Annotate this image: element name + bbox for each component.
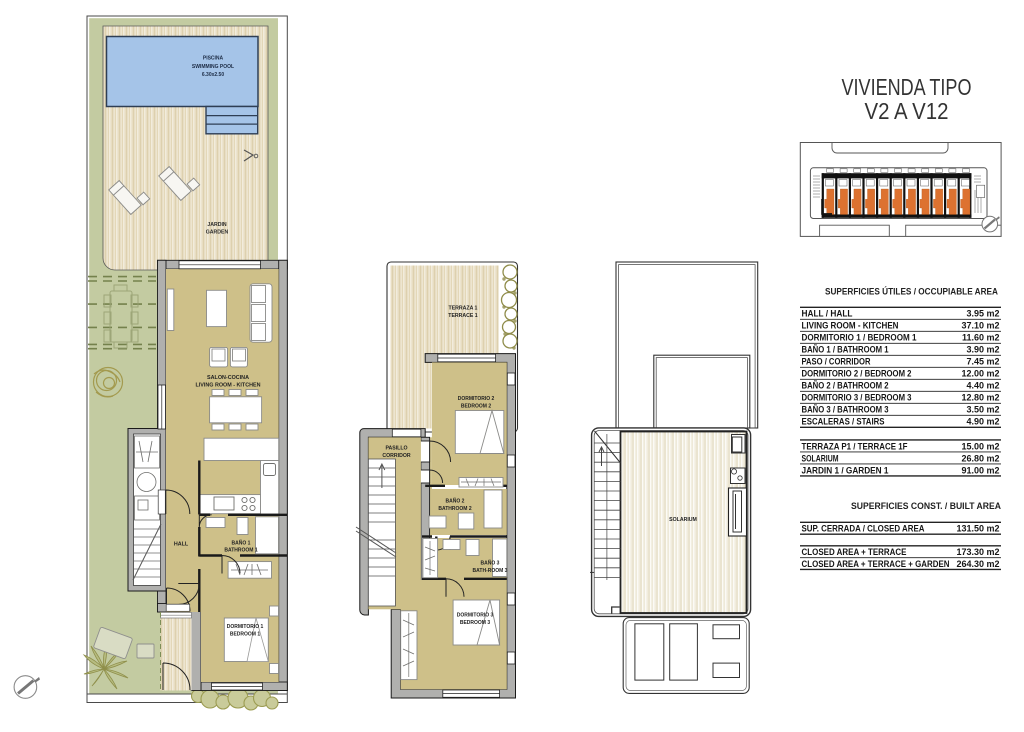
svg-text:SWIMMING POOL: SWIMMING POOL <box>192 64 234 70</box>
svg-text:HALL / HALL: HALL / HALL <box>802 309 853 319</box>
svg-text:7.45 m2: 7.45 m2 <box>966 357 999 367</box>
svg-text:BAÑO 3 / BATHROOM 3: BAÑO 3 / BATHROOM 3 <box>802 405 889 415</box>
svg-text:3.95 m2: 3.95 m2 <box>966 309 999 319</box>
svg-text:BAÑO 3: BAÑO 3 <box>481 560 500 567</box>
svg-text:SOLARIUM: SOLARIUM <box>669 517 697 523</box>
svg-text:BEDROOM 1: BEDROOM 1 <box>230 632 261 638</box>
svg-text:BEDROOM 2: BEDROOM 2 <box>461 404 492 410</box>
svg-text:JARDIN: JARDIN <box>207 222 227 228</box>
svg-text:SUP. CERRADA / CLOSED AREA: SUP. CERRADA / CLOSED AREA <box>802 524 925 534</box>
svg-text:PASILLO: PASILLO <box>385 446 407 452</box>
svg-text:26.80 m2: 26.80 m2 <box>961 453 999 463</box>
svg-text:173.30 m2: 173.30 m2 <box>956 547 999 557</box>
svg-text:4.90 m2: 4.90 m2 <box>966 417 999 427</box>
svg-text:12.00 m2: 12.00 m2 <box>961 369 999 379</box>
svg-text:JARDIN 1 / GARDEN 1: JARDIN 1 / GARDEN 1 <box>802 465 889 475</box>
svg-text:CLOSED AREA + TERRACE: CLOSED AREA + TERRACE <box>802 547 907 557</box>
svg-text:BAÑO 1: BAÑO 1 <box>232 540 251 547</box>
svg-text:CLOSED AREA + TERRACE + GARDEN: CLOSED AREA + TERRACE + GARDEN <box>802 559 950 569</box>
svg-text:BAÑO 1 / BATHROOM 1: BAÑO 1 / BATHROOM 1 <box>802 345 889 355</box>
svg-text:CORRIDOR: CORRIDOR <box>382 453 410 459</box>
svg-text:BAÑO 2 / BATHROOM 2: BAÑO 2 / BATHROOM 2 <box>802 381 889 391</box>
svg-text:BATHROOM 2: BATHROOM 2 <box>438 506 471 512</box>
svg-text:DORMITORIO 2: DORMITORIO 2 <box>458 396 495 402</box>
svg-text:131.50 m2: 131.50 m2 <box>956 524 999 534</box>
svg-text:37.10 m2: 37.10 m2 <box>961 321 999 331</box>
svg-text:PISCINA: PISCINA <box>203 56 224 62</box>
svg-text:V2 A V12: V2 A V12 <box>865 98 949 124</box>
svg-text:BEDROOM 3: BEDROOM 3 <box>460 620 491 626</box>
svg-text:264.30 m2: 264.30 m2 <box>956 559 999 569</box>
svg-text:6.30x2.50: 6.30x2.50 <box>202 72 224 78</box>
svg-text:SUPERFICIES ÚTILES / OCCUPIABL: SUPERFICIES ÚTILES / OCCUPIABLE AREA <box>825 286 998 298</box>
svg-text:12.80 m2: 12.80 m2 <box>961 393 999 403</box>
svg-text:DORMITORIO 3 / BEDROOM 3: DORMITORIO 3 / BEDROOM 3 <box>802 393 912 403</box>
svg-text:DORMITORIO 3: DORMITORIO 3 <box>457 613 494 619</box>
svg-text:BATH-ROOM 3: BATH-ROOM 3 <box>473 568 508 574</box>
svg-text:GARDEN: GARDEN <box>206 230 229 236</box>
svg-text:LIVING ROOM - KITCHEN: LIVING ROOM - KITCHEN <box>196 383 261 389</box>
svg-text:ESCALERAS / STAIRS: ESCALERAS / STAIRS <box>802 417 885 427</box>
svg-text:SALON-COCINA: SALON-COCINA <box>207 375 249 381</box>
svg-text:DORMITORIO 1: DORMITORIO 1 <box>227 624 264 630</box>
svg-text:3.90 m2: 3.90 m2 <box>966 345 999 355</box>
svg-text:BAÑO 2: BAÑO 2 <box>446 498 465 505</box>
svg-text:4.40 m2: 4.40 m2 <box>966 381 999 391</box>
svg-text:TERRACE 1: TERRACE 1 <box>448 313 478 319</box>
svg-text:DORMITORIO 1 / BEDROOM 1: DORMITORIO 1 / BEDROOM 1 <box>802 333 917 343</box>
svg-text:LIVING ROOM - KITCHEN: LIVING ROOM - KITCHEN <box>802 321 899 331</box>
svg-text:HALL: HALL <box>174 542 189 548</box>
svg-text:SUPERFICIES CONST. / BUILT AR: SUPERFICIES CONST. / BUILT AREA <box>851 501 1001 512</box>
svg-text:TERRAZA P1 / TERRACE 1F: TERRAZA P1 / TERRACE 1F <box>802 441 908 451</box>
svg-text:SOLARIUM: SOLARIUM <box>802 453 839 463</box>
svg-text:15.00 m2: 15.00 m2 <box>961 441 999 451</box>
svg-text:VIVIENDA TIPO: VIVIENDA TIPO <box>842 74 972 100</box>
svg-text:DORMITORIO 2 / BEDROOM 2: DORMITORIO 2 / BEDROOM 2 <box>802 369 912 379</box>
svg-text:BATHROOM 1: BATHROOM 1 <box>224 548 257 554</box>
svg-text:3.50 m2: 3.50 m2 <box>966 405 999 415</box>
svg-text:11.60 m2: 11.60 m2 <box>962 333 1000 343</box>
svg-text:TERRAZA 1: TERRAZA 1 <box>449 306 478 312</box>
svg-text:91.00 m2: 91.00 m2 <box>961 465 999 475</box>
svg-text:PASO / CORRIDOR: PASO / CORRIDOR <box>802 357 871 367</box>
